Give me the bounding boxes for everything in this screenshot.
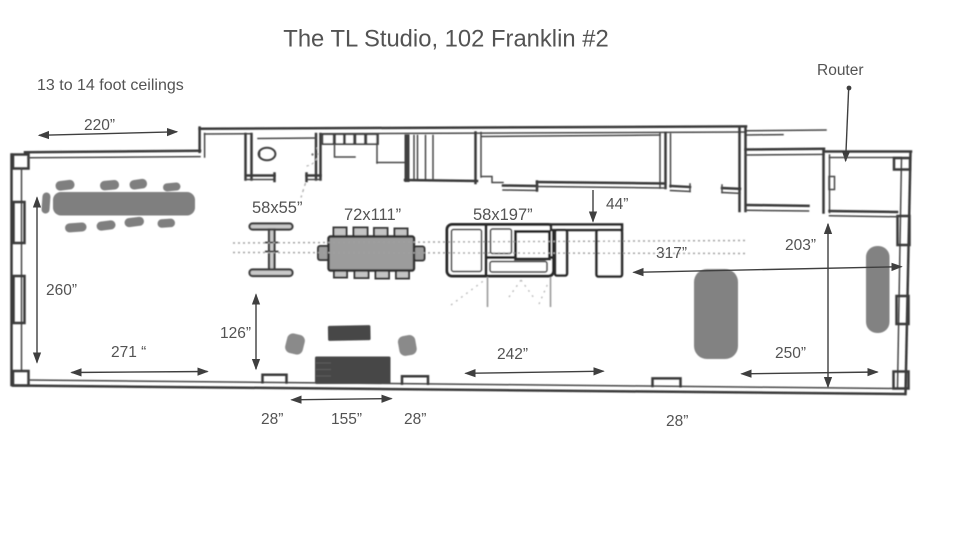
svg-text:317”: 317” bbox=[656, 245, 687, 262]
svg-text:13 to 14 foot ceilings: 13 to 14 foot ceilings bbox=[37, 77, 184, 94]
svg-text:260”: 260” bbox=[46, 282, 77, 299]
svg-text:250”: 250” bbox=[775, 345, 806, 362]
svg-text:28”: 28” bbox=[261, 411, 283, 428]
svg-text:Router: Router bbox=[817, 62, 864, 79]
svg-text:203”: 203” bbox=[785, 237, 816, 254]
svg-text:44”: 44” bbox=[606, 196, 628, 213]
svg-text:72x111”: 72x111” bbox=[344, 206, 401, 224]
svg-text:58x197”: 58x197” bbox=[473, 206, 533, 224]
svg-text:155”: 155” bbox=[331, 411, 362, 428]
svg-text:The TL Studio, 102 Franklin #2: The TL Studio, 102 Franklin #2 bbox=[283, 26, 608, 53]
svg-text:242”: 242” bbox=[497, 346, 528, 363]
svg-text:58x55”: 58x55” bbox=[252, 199, 302, 217]
svg-text:28”: 28” bbox=[666, 413, 688, 430]
svg-text:220”: 220” bbox=[84, 117, 115, 134]
svg-text:126”: 126” bbox=[220, 325, 251, 342]
svg-text:271 “: 271 “ bbox=[111, 344, 146, 361]
svg-text:28”: 28” bbox=[404, 411, 426, 428]
